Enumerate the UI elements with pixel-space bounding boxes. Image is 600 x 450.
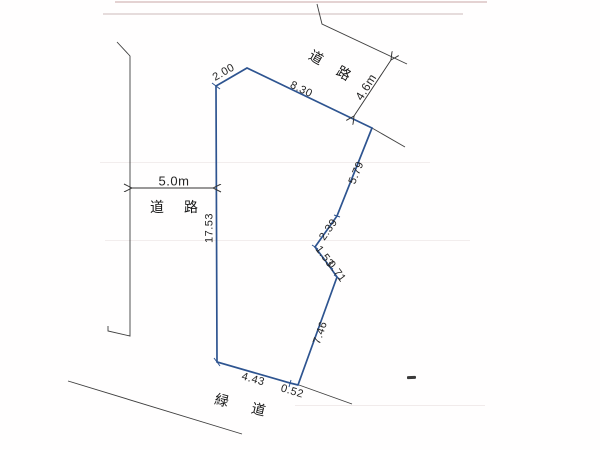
plot-boundary (216, 68, 372, 385)
road-top-near-edge-line (372, 128, 405, 147)
plot-svg (0, 0, 600, 450)
road-left-label: 道 路 (150, 200, 206, 214)
road-top-edge-line (317, 4, 407, 64)
road-left-edge-line (108, 42, 130, 336)
edge-length-17-53: 17.53 (205, 213, 216, 243)
greenway-far-edge-line (68, 381, 242, 434)
road-left-width-label: 5.0m (159, 175, 190, 188)
survey-drawing: 2.00 8.30 5.79 2.39 1.53 0.71 7.46 4.43 … (0, 0, 600, 450)
greenway-near-edge-line (299, 385, 352, 404)
